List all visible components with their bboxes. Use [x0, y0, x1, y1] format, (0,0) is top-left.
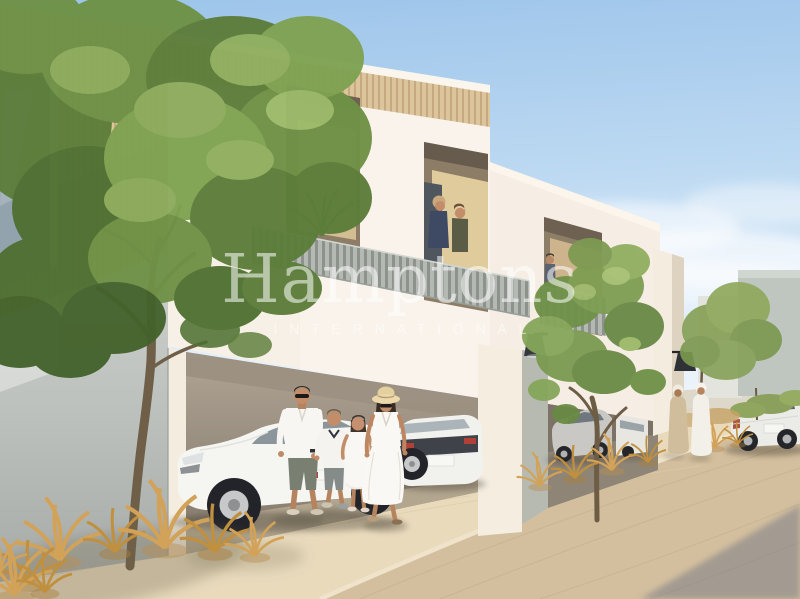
head	[327, 412, 341, 426]
straw-hat-brim	[372, 394, 400, 404]
hand	[315, 456, 320, 461]
license-plate	[428, 455, 454, 466]
face	[674, 389, 682, 397]
sunglasses	[295, 394, 309, 398]
sunglasses	[380, 404, 392, 408]
pillar-return-face	[522, 350, 548, 524]
white-sports-car	[394, 415, 486, 491]
woman-head	[435, 201, 445, 211]
sneaker	[338, 503, 349, 509]
scene-illustration	[0, 0, 800, 599]
carport-pillar	[478, 344, 522, 536]
shoe	[287, 509, 300, 515]
shoe	[311, 509, 324, 515]
sneaker	[322, 502, 333, 508]
dress-bodice	[371, 412, 401, 446]
person-head	[546, 256, 554, 264]
sandal	[392, 519, 403, 524]
sandal	[368, 516, 379, 521]
woman-body	[428, 211, 449, 248]
sandal	[361, 508, 370, 513]
child-head	[455, 208, 465, 218]
sandal	[348, 507, 357, 512]
hand	[365, 453, 370, 458]
tail-light	[464, 438, 476, 444]
face	[697, 387, 705, 395]
child-body	[452, 218, 468, 252]
head	[352, 418, 365, 431]
hand	[403, 451, 408, 456]
hand	[278, 451, 284, 457]
rendering-canvas: Hamptons INTERNATIONAL	[0, 0, 800, 599]
distant-building-parapet	[738, 270, 800, 278]
